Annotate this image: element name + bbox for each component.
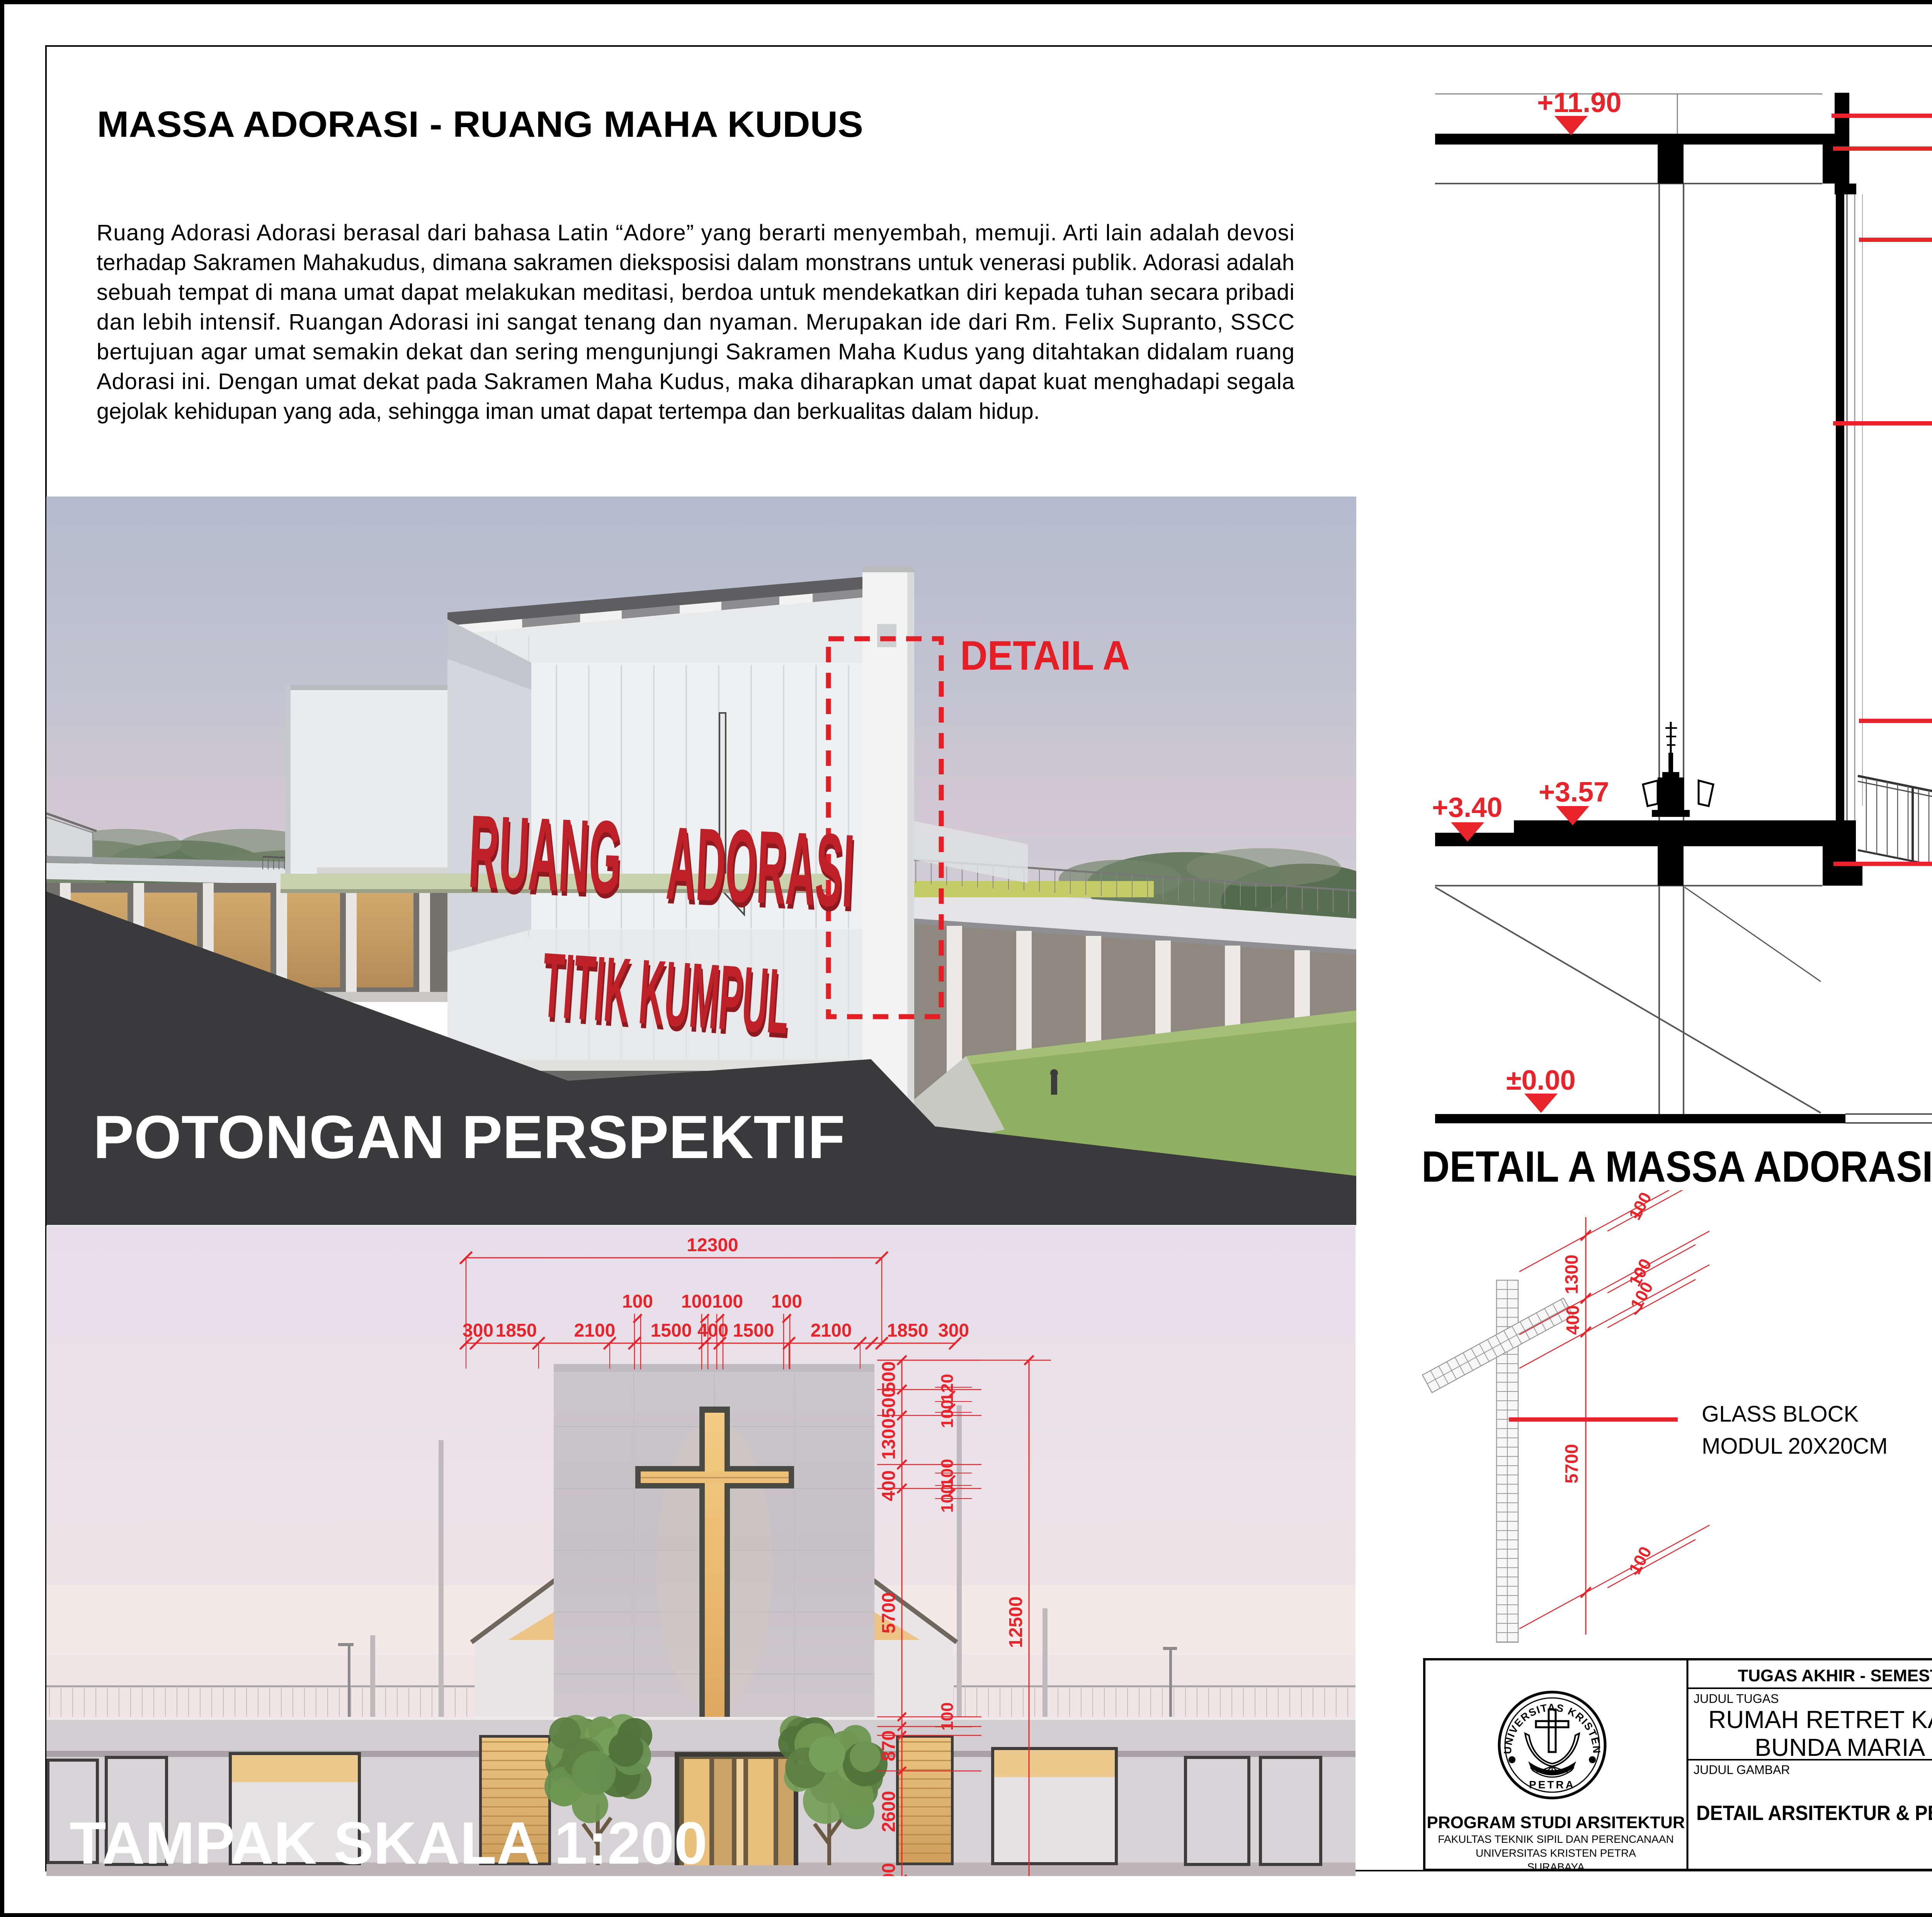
svg-text:100: 100 (1625, 1190, 1655, 1223)
svg-text:1850: 1850 (887, 1320, 929, 1341)
svg-text:DETAIL A: DETAIL A (960, 632, 1130, 679)
svg-text:1300: 1300 (879, 1419, 899, 1460)
svg-text:2100: 2100 (574, 1320, 616, 1341)
svg-text:±0.00: ±0.00 (1506, 1065, 1576, 1096)
svg-text:Ruang Adorasi Adorasi berasal: Ruang Adorasi Adorasi berasal dari bahas… (97, 220, 1294, 245)
svg-text:100: 100 (938, 1484, 957, 1512)
svg-text:TITIK KUMPUL: TITIK KUMPUL (539, 934, 793, 1053)
svg-text:2600: 2600 (879, 1791, 899, 1832)
svg-text:300: 300 (463, 1320, 493, 1341)
svg-text:400: 400 (1563, 1305, 1583, 1335)
svg-text:100: 100 (622, 1291, 653, 1312)
svg-text:bertujuan agar umat semakin de: bertujuan agar umat semakin dekat dan se… (97, 339, 1294, 364)
svg-text:DETAIL A MASSA ADORASI - RUANG: DETAIL A MASSA ADORASI - RUANG MAHA KUDU… (1422, 1142, 1932, 1191)
svg-text:400: 400 (697, 1320, 728, 1341)
svg-text:+3.57: +3.57 (1539, 777, 1609, 808)
svg-text:500: 500 (879, 1387, 899, 1418)
svg-text:870: 870 (879, 1730, 899, 1761)
svg-text:1300: 1300 (1561, 1255, 1582, 1294)
svg-text:12300: 12300 (687, 1235, 738, 1255)
svg-text:+3.40: +3.40 (1432, 792, 1502, 823)
svg-text:dan lebih intensif. Ruangan Ad: dan lebih intensif. Ruangan Adorasi ini … (97, 310, 1294, 335)
svg-text:terhadap Sakramen Mahakudus, d: terhadap Sakramen Mahakudus, dimana sakr… (97, 250, 1294, 275)
svg-text:100: 100 (771, 1291, 802, 1312)
svg-text:400: 400 (879, 1470, 899, 1501)
svg-text:120: 120 (938, 1374, 957, 1402)
svg-text:sebuah tempat di mana umat dap: sebuah tempat di mana umat dapat melakuk… (97, 280, 1294, 305)
svg-text:POTONGAN PERSPEKTIF: POTONGAN PERSPEKTIF (93, 1103, 845, 1171)
svg-text:1500: 1500 (651, 1320, 692, 1341)
svg-text:gejolak kehidupan yang ada, se: gejolak kehidupan yang ada, sehingga ima… (97, 399, 1040, 424)
svg-text:DETAIL ARSITEKTUR & PENDALAMAN: DETAIL ARSITEKTUR & PENDALAMAN (1696, 1801, 1932, 1825)
svg-text:100: 100 (879, 1863, 899, 1876)
svg-text:100: 100 (938, 1400, 957, 1428)
svg-text:100: 100 (938, 1702, 957, 1730)
svg-text:300: 300 (938, 1320, 969, 1341)
svg-text:12500: 12500 (1006, 1596, 1026, 1648)
svg-text:Adorasi ini. Dengan umat dekat: Adorasi ini. Dengan umat dekat pada Sakr… (97, 369, 1295, 394)
svg-text:2100: 2100 (811, 1320, 852, 1341)
svg-text:RUANG: RUANG (466, 794, 624, 916)
svg-text:ADORASI: ADORASI (665, 806, 857, 929)
svg-text:1850: 1850 (496, 1320, 537, 1341)
svg-text:100100: 100100 (681, 1291, 743, 1312)
svg-text:100: 100 (1625, 1543, 1655, 1577)
svg-text:100: 100 (938, 1459, 957, 1487)
svg-text:PETRA: PETRA (1529, 1779, 1575, 1791)
svg-text:+11.90: +11.90 (1537, 87, 1621, 118)
svg-text:5700: 5700 (1561, 1444, 1582, 1483)
svg-text:5700: 5700 (879, 1592, 899, 1634)
svg-text:1500: 1500 (733, 1320, 774, 1341)
svg-text:MASSA ADORASI - RUANG MAHA KUD: MASSA ADORASI - RUANG MAHA KUDUS (97, 104, 863, 145)
